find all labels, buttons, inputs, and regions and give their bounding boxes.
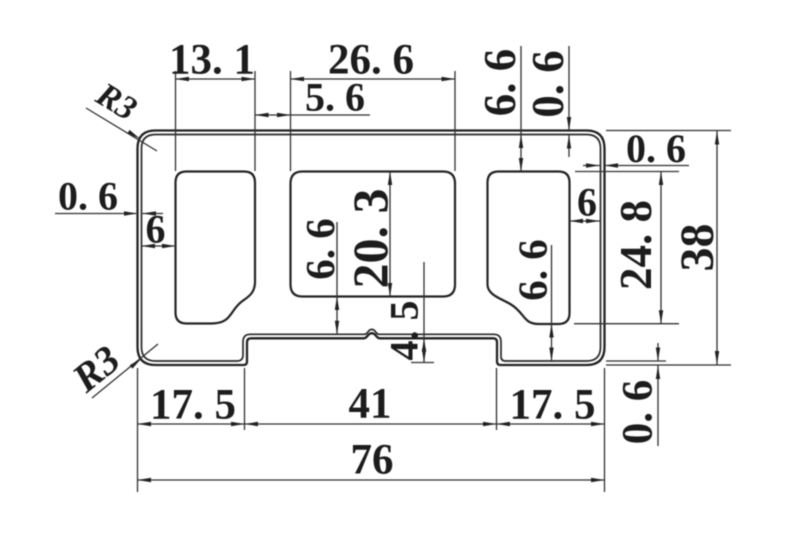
svg-text:6. 6: 6. 6 bbox=[297, 218, 343, 280]
svg-text:R3: R3 bbox=[63, 336, 128, 401]
svg-text:13. 1: 13. 1 bbox=[169, 37, 255, 84]
svg-text:0. 6: 0. 6 bbox=[615, 380, 662, 445]
svg-text:0. 6: 0. 6 bbox=[523, 50, 573, 118]
svg-text:6: 6 bbox=[146, 207, 166, 252]
svg-text:5. 6: 5. 6 bbox=[305, 75, 365, 120]
svg-text:41: 41 bbox=[349, 381, 392, 428]
svg-text:R3: R3 bbox=[89, 75, 143, 128]
svg-text:4. 5: 4. 5 bbox=[382, 301, 427, 361]
svg-text:17. 5: 17. 5 bbox=[150, 382, 236, 429]
svg-text:0. 6: 0. 6 bbox=[626, 126, 686, 171]
svg-text:38: 38 bbox=[671, 224, 724, 272]
svg-text:76: 76 bbox=[351, 437, 394, 484]
svg-text:6. 6: 6. 6 bbox=[475, 49, 525, 117]
svg-text:6. 6: 6. 6 bbox=[510, 239, 556, 301]
svg-text:24. 8: 24. 8 bbox=[611, 200, 661, 290]
svg-text:0. 6: 0. 6 bbox=[58, 174, 118, 219]
svg-text:17. 5: 17. 5 bbox=[510, 382, 596, 429]
svg-text:20. 3: 20. 3 bbox=[342, 189, 398, 289]
svg-text:6: 6 bbox=[577, 180, 597, 225]
